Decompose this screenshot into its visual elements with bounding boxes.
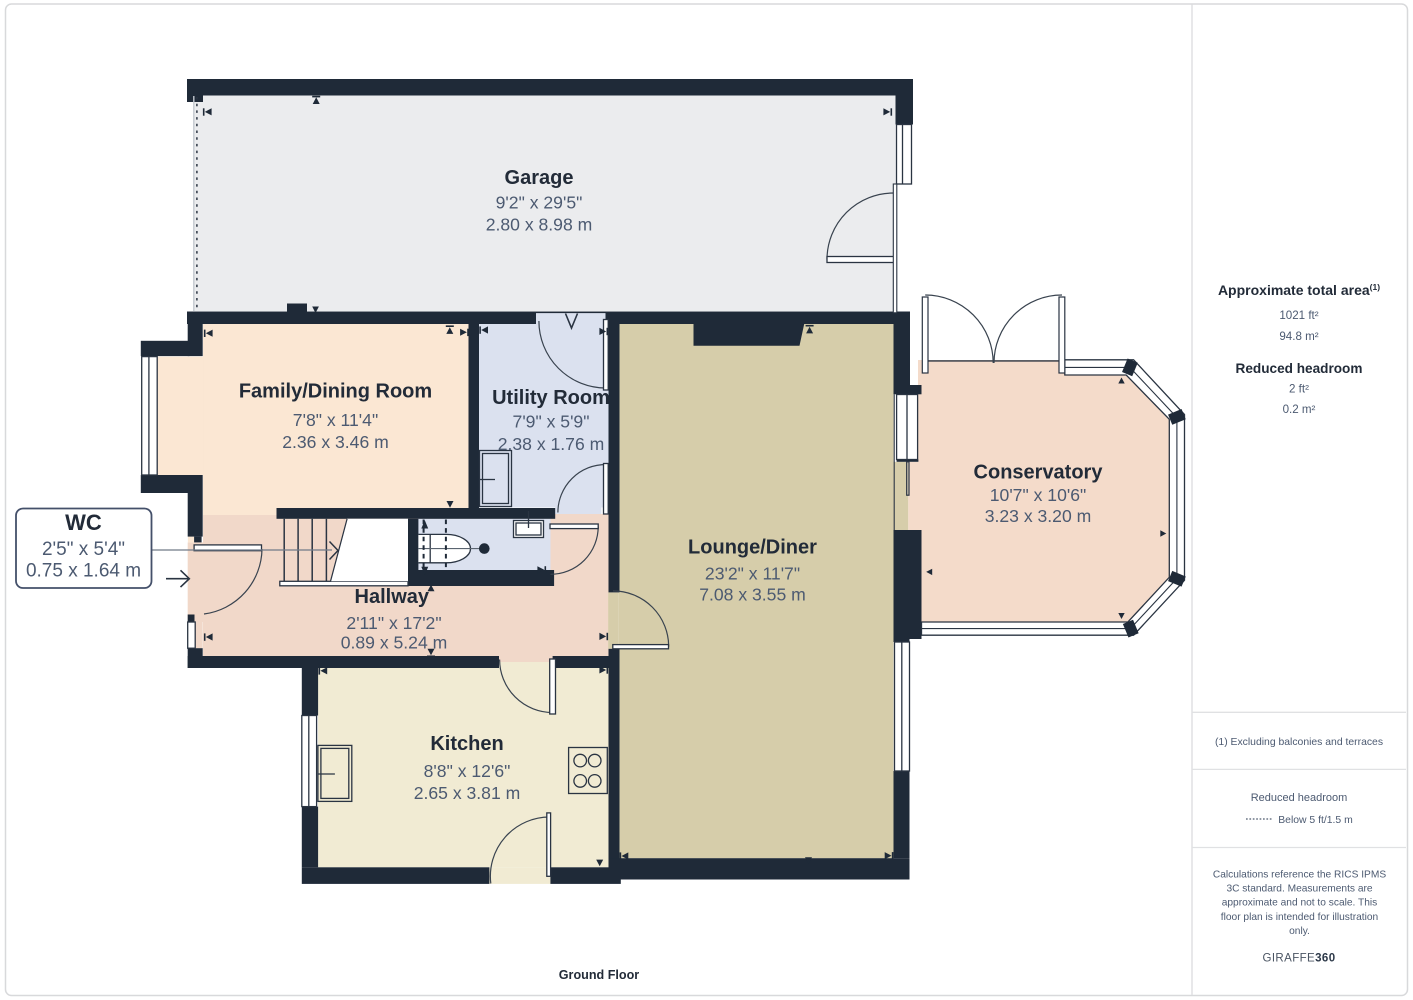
svg-text:Family/Dining Room: Family/Dining Room bbox=[239, 381, 432, 403]
svg-text:2 ft²: 2 ft² bbox=[1289, 383, 1309, 396]
svg-text:Utility Room: Utility Room bbox=[492, 387, 610, 409]
svg-text:3.23 x 3.20 m: 3.23 x 3.20 m bbox=[985, 506, 1092, 526]
svg-text:Conservatory: Conservatory bbox=[974, 462, 1104, 484]
svg-text:floor plan is intended for ill: floor plan is intended for illustration bbox=[1221, 912, 1378, 923]
svg-text:7'8" x 11'4": 7'8" x 11'4" bbox=[293, 410, 378, 430]
svg-text:Reduced headroom: Reduced headroom bbox=[1251, 792, 1348, 804]
svg-text:Calculations reference the RIC: Calculations reference the RICS IPMS bbox=[1213, 870, 1386, 881]
svg-text:0.2 m²: 0.2 m² bbox=[1283, 403, 1316, 416]
svg-text:Lounge/Diner: Lounge/Diner bbox=[688, 537, 817, 559]
svg-text:10'7" x 10'6": 10'7" x 10'6" bbox=[990, 485, 1087, 505]
svg-text:2.36 x 3.46 m: 2.36 x 3.46 m bbox=[282, 432, 389, 452]
svg-text:Hallway: Hallway bbox=[355, 586, 430, 608]
svg-text:0.89 x 5.24 m: 0.89 x 5.24 m bbox=[341, 633, 448, 653]
svg-text:23'2" x 11'7": 23'2" x 11'7" bbox=[705, 564, 800, 584]
svg-text:2.38 x 1.76 m: 2.38 x 1.76 m bbox=[498, 434, 605, 454]
svg-text:approximate and not to scale.: approximate and not to scale. This bbox=[1222, 898, 1378, 909]
svg-text:8'8" x 12'6": 8'8" x 12'6" bbox=[424, 761, 511, 781]
svg-text:GIRAFFE360: GIRAFFE360 bbox=[1262, 953, 1335, 965]
svg-text:(1) Excluding balconies and te: (1) Excluding balconies and terraces bbox=[1215, 737, 1383, 748]
svg-text:2.65 x 3.81 m: 2.65 x 3.81 m bbox=[414, 783, 521, 803]
svg-text:2.80 x 8.98 m: 2.80 x 8.98 m bbox=[486, 215, 593, 235]
svg-text:Approximate total area(1): Approximate total area(1) bbox=[1218, 282, 1380, 298]
svg-text:7.08 x 3.55 m: 7.08 x 3.55 m bbox=[699, 585, 806, 605]
svg-text:94.8 m²: 94.8 m² bbox=[1279, 330, 1318, 343]
svg-text:2'11" x 17'2": 2'11" x 17'2" bbox=[346, 613, 441, 633]
svg-text:Reduced headroom: Reduced headroom bbox=[1236, 361, 1363, 376]
svg-text:9'2" x 29'5": 9'2" x 29'5" bbox=[496, 193, 583, 213]
svg-text:7'9" x 5'9": 7'9" x 5'9" bbox=[513, 412, 590, 432]
svg-text:only.: only. bbox=[1289, 926, 1310, 937]
svg-text:3C standard. Measurements are: 3C standard. Measurements are bbox=[1226, 884, 1372, 895]
svg-text:WC: WC bbox=[65, 510, 102, 535]
svg-text:Below 5 ft/1.5 m: Below 5 ft/1.5 m bbox=[1278, 815, 1353, 826]
svg-text:Ground Floor: Ground Floor bbox=[559, 968, 640, 982]
svg-text:0.75 x 1.64 m: 0.75 x 1.64 m bbox=[26, 561, 141, 582]
svg-text:Kitchen: Kitchen bbox=[430, 733, 503, 755]
svg-text:Garage: Garage bbox=[505, 167, 574, 189]
svg-text:2'5" x 5'4": 2'5" x 5'4" bbox=[42, 539, 125, 560]
svg-text:1021 ft²: 1021 ft² bbox=[1279, 309, 1318, 322]
